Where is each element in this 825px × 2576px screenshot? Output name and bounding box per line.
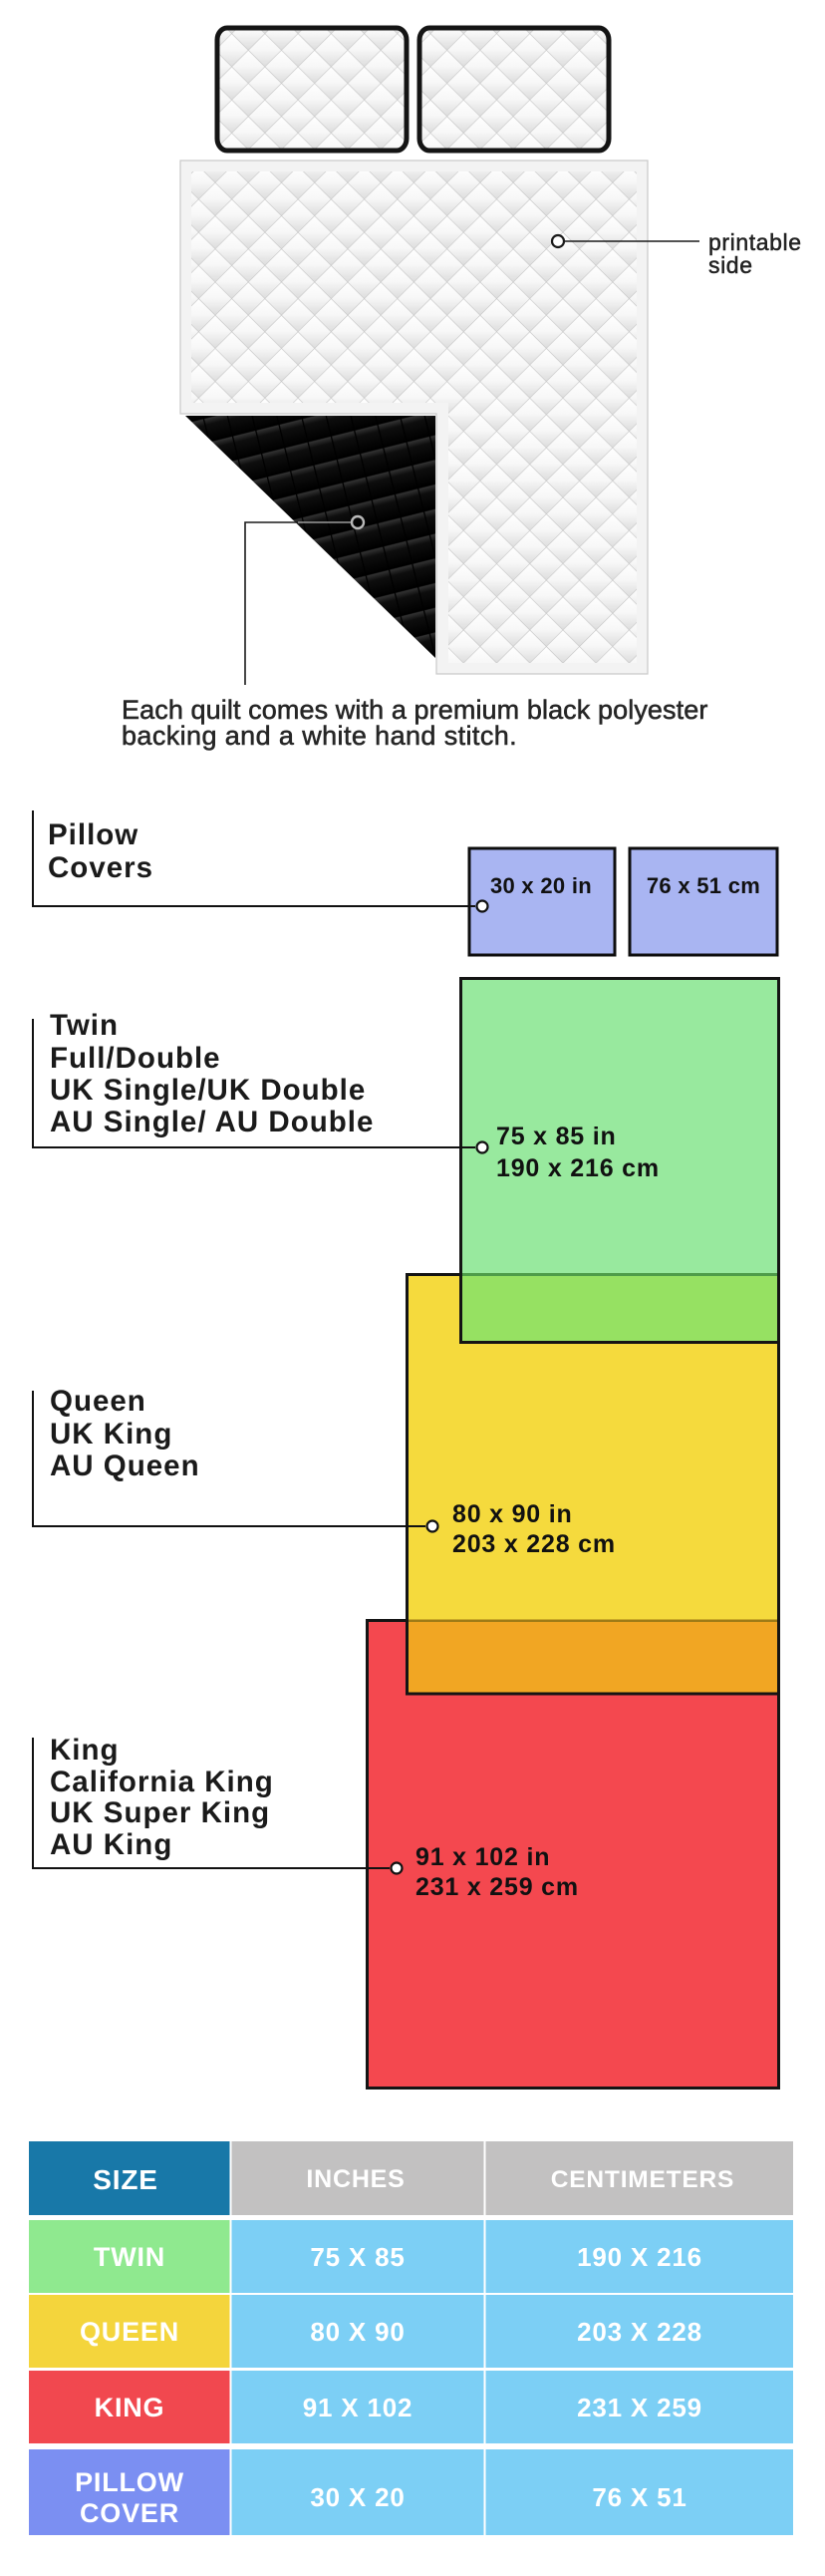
svg-text:190 X 216: 190 X 216 (577, 2242, 702, 2272)
svg-text:TWIN: TWIN (94, 2242, 165, 2272)
svg-text:75 X 85: 75 X 85 (310, 2242, 405, 2272)
svg-text:Twin: Twin (50, 1009, 119, 1042)
svg-text:UK Super King: UK Super King (50, 1796, 270, 1829)
svg-text:UK Single/UK Double: UK Single/UK Double (50, 1074, 366, 1107)
svg-text:91 x 102 in: 91 x 102 in (415, 1843, 550, 1871)
svg-text:side: side (708, 252, 753, 278)
svg-text:backing and a white hand stitc: backing and a white hand stitch. (122, 721, 517, 751)
svg-text:California King: California King (50, 1766, 274, 1798)
svg-text:Pillow: Pillow (48, 818, 138, 851)
svg-text:76 X 51: 76 X 51 (592, 2482, 687, 2512)
svg-text:203 x 228 cm: 203 x 228 cm (452, 1530, 616, 1558)
svg-text:PILLOW: PILLOW (75, 2467, 184, 2497)
svg-text:SIZE: SIZE (93, 2164, 157, 2195)
svg-text:CENTIMETERS: CENTIMETERS (551, 2166, 734, 2193)
svg-text:231 X 259: 231 X 259 (577, 2393, 702, 2422)
svg-text:75 x 85 in: 75 x 85 in (496, 1123, 617, 1150)
svg-text:AU Queen: AU Queen (50, 1449, 200, 1482)
svg-text:76 x 51 cm: 76 x 51 cm (647, 873, 760, 898)
svg-text:King: King (50, 1734, 120, 1767)
svg-text:30 x 20 in: 30 x 20 in (490, 873, 592, 898)
svg-text:Covers: Covers (48, 851, 153, 884)
svg-text:AU King: AU King (50, 1828, 172, 1861)
svg-text:UK King: UK King (50, 1418, 172, 1450)
svg-text:190 x 216 cm: 190 x 216 cm (496, 1154, 660, 1182)
svg-text:30 X 20: 30 X 20 (310, 2482, 405, 2512)
svg-text:80 x 90 in: 80 x 90 in (452, 1500, 573, 1528)
svg-text:KING: KING (95, 2393, 165, 2422)
svg-text:INCHES: INCHES (306, 2165, 405, 2193)
svg-text:91 X 102: 91 X 102 (303, 2393, 413, 2422)
svg-text:AU Single/ AU Double: AU Single/ AU Double (50, 1106, 374, 1138)
svg-text:203 X 228: 203 X 228 (577, 2317, 702, 2347)
svg-text:Full/Double: Full/Double (50, 1042, 221, 1075)
svg-text:COVER: COVER (80, 2498, 179, 2528)
svg-text:Queen: Queen (50, 1385, 146, 1418)
svg-text:80 X 90: 80 X 90 (310, 2317, 405, 2347)
svg-text:QUEEN: QUEEN (80, 2317, 179, 2347)
svg-text:231 x 259 cm: 231 x 259 cm (415, 1873, 579, 1901)
